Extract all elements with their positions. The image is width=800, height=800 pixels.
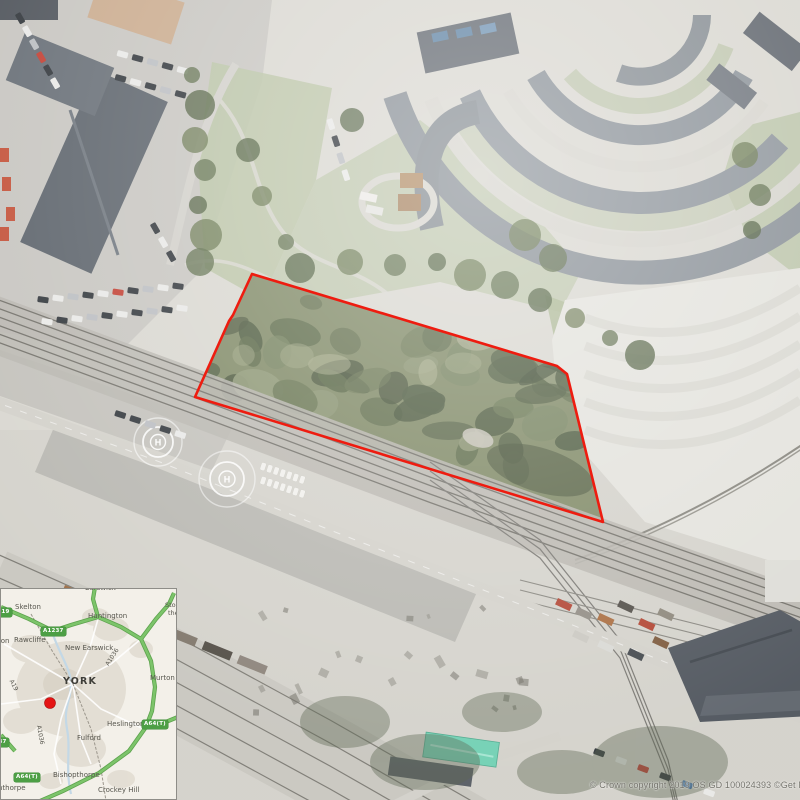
inset-map-label: Crockey Hill xyxy=(98,787,139,794)
inset-map-label: Skelton xyxy=(15,604,41,611)
road-number-shield: A64(T) xyxy=(14,773,40,782)
inset-map-label: YORK xyxy=(63,677,97,687)
inset-map-label: Rawcliffe xyxy=(14,637,46,644)
site-marker-dot xyxy=(45,698,56,709)
road-number-shield: A1237 xyxy=(41,627,66,636)
inset-map-label: Sto xyxy=(165,602,176,609)
site-location-plan: H H xyxy=(0,0,800,800)
inset-map-label: Heslington xyxy=(107,721,144,728)
road-number-shield: A64(T) xyxy=(142,720,168,729)
inset-roads xyxy=(1,589,177,800)
inset-map-label: Fulford xyxy=(77,735,101,742)
inset-location-map: EarswickSkeltonStotheHuntingtonRawcliffe… xyxy=(0,588,177,800)
inset-map-label: Earswick xyxy=(85,588,116,592)
inset-map-label: Huntington xyxy=(88,613,127,620)
inset-map-label: Murton xyxy=(150,675,175,682)
inset-map-label: Bishopthorpe xyxy=(53,772,100,779)
inset-map-label: nthorpe xyxy=(0,785,26,792)
road-number-shield: A1237 xyxy=(0,738,9,747)
copyright-notice: © Crown copyright 2019 OS GD 100024393 ©… xyxy=(590,780,800,790)
inset-map-label: ton xyxy=(0,638,9,645)
road-number-shield: A19 xyxy=(0,608,12,617)
inset-map-label: the xyxy=(168,610,177,617)
inset-map-label: New Earswick xyxy=(65,645,113,652)
